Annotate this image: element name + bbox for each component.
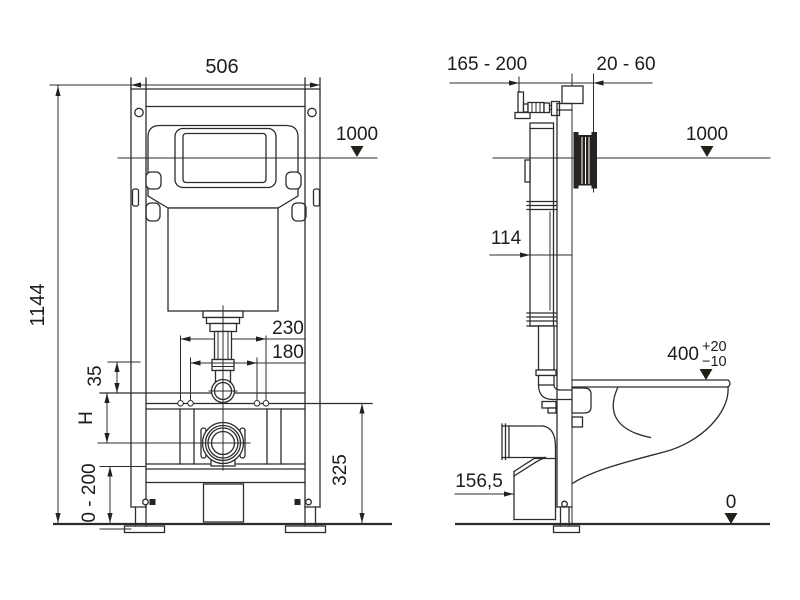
level-marker-front — [351, 146, 364, 157]
leg-hole-left — [143, 499, 149, 505]
leg-hole-right — [306, 499, 312, 505]
foot-right — [286, 526, 326, 533]
rail-bracket-right — [292, 203, 306, 221]
dim-wall-thickness: 20 - 60 — [596, 54, 655, 75]
dim-frame-width: 506 — [205, 56, 238, 78]
anchor-hole-right — [308, 108, 316, 116]
dim-cistern-depth: 114 — [491, 228, 522, 249]
dim-outlet-offset: 156,5 — [455, 471, 503, 492]
dim-flush-offset: 35 — [85, 365, 106, 386]
bowl-fixing — [572, 417, 583, 427]
toilet-bowl — [572, 380, 730, 484]
dim-water-level-front: 1000 — [336, 124, 378, 145]
anchor-hole-left — [135, 108, 143, 116]
flush-valve-housing — [539, 326, 555, 370]
protection-block — [574, 132, 598, 189]
level-marker-seat — [700, 369, 713, 380]
dim-leg-range: 0 - 200 — [79, 463, 100, 522]
side-labels: 165 - 200 20 - 60 1000 114 400 +20 −10 1… — [447, 54, 736, 513]
level-marker-floor — [725, 513, 738, 524]
flush-spigot — [572, 388, 591, 413]
dim-seat-tol-plus: +20 — [702, 339, 727, 355]
cistern-tab-left — [146, 172, 161, 189]
dim-outlet-height: H — [76, 411, 97, 425]
cistern-tab-right — [286, 172, 301, 189]
waste-elbow-side — [502, 424, 556, 520]
dim-seat-tol-minus: −10 — [702, 354, 727, 370]
dim-spacing-inner: 180 — [272, 342, 304, 363]
dim-spacing-outer: 230 — [272, 318, 304, 339]
rail-bracket-left — [146, 203, 160, 221]
foot-side — [554, 526, 580, 533]
wall-anchor — [562, 86, 583, 104]
dim-rail-height: 325 — [330, 454, 351, 486]
front-view: 506 1000 1144 230 180 35 H 0 - 200 325 — [27, 56, 392, 533]
cistern-lower-body — [168, 208, 278, 311]
level-marker-side-1000 — [701, 146, 714, 157]
side-view: 165 - 200 20 - 60 1000 114 400 +20 −10 1… — [447, 54, 770, 533]
supply-valve — [515, 92, 560, 119]
dim-water-level-side: 1000 — [686, 124, 728, 145]
technical-drawing-page: 506 1000 1144 230 180 35 H 0 - 200 325 — [0, 0, 800, 600]
dim-seat-height: 400 — [667, 344, 699, 365]
rail-slot-right — [314, 189, 320, 206]
outlet-guard-box — [204, 484, 244, 522]
cistern-front — [146, 126, 301, 312]
installation-diagram: 506 1000 1144 230 180 35 H 0 - 200 325 — [0, 0, 800, 600]
dim-total-height: 1144 — [27, 283, 49, 326]
rail-slot-left — [133, 189, 139, 206]
leg-lock-left — [150, 499, 156, 505]
bowl-inner-rim — [613, 388, 650, 438]
bowl-outline — [573, 387, 729, 484]
dim-supply-range: 165 - 200 — [447, 54, 527, 75]
leg-lock-right — [295, 499, 301, 505]
dim-floor-level: 0 — [726, 492, 737, 513]
